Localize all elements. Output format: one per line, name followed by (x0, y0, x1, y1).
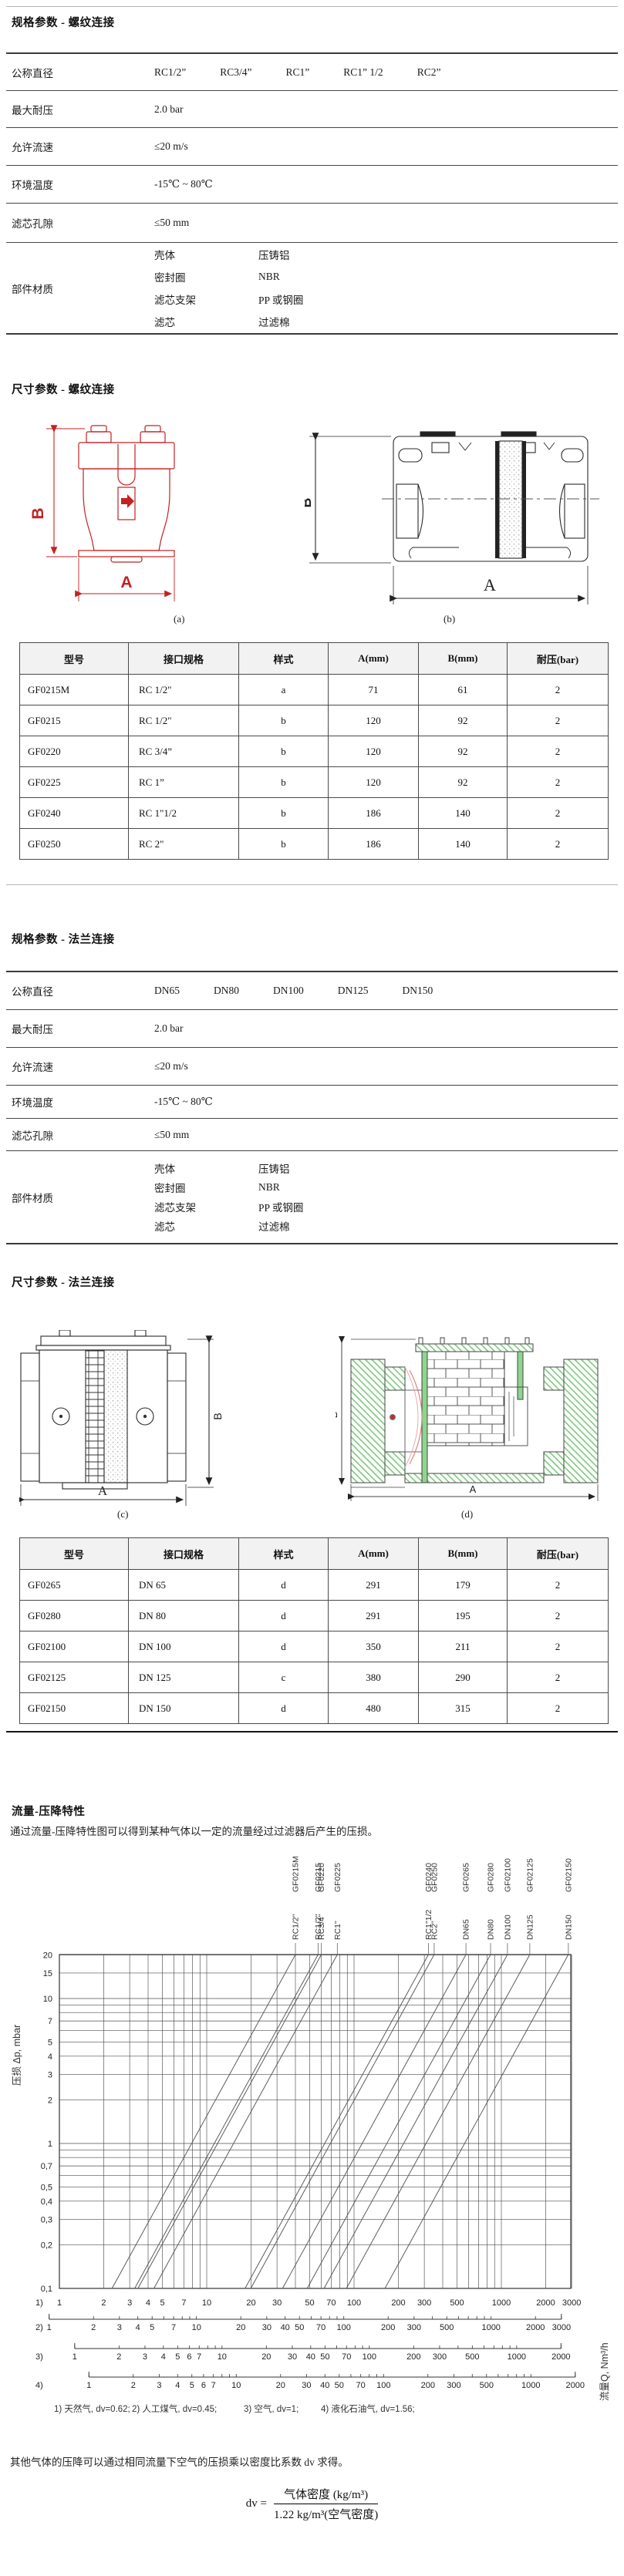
svg-text:1: 1 (47, 2323, 52, 2332)
svg-text:4: 4 (146, 2298, 150, 2308)
flow-pressure-chart: GF0215MRC1/2"GF0215RC1/2"GF0220RC3/4"GF0… (0, 1843, 624, 2430)
spec-row-diameter: 公称直径 DN65DN80DN100DN125DN150 (6, 972, 618, 1009)
svg-text:70: 70 (342, 2352, 351, 2362)
table-row: GF0240RC 1"1/2b1861402 (20, 798, 609, 829)
spec-value: 2.0 bar (154, 1022, 618, 1035)
spec-row-pore: 滤芯孔隙 ≤50 mm (6, 203, 618, 242)
svg-text:3000: 3000 (552, 2323, 571, 2332)
svg-text:200: 200 (406, 2352, 420, 2362)
svg-text:7: 7 (211, 2381, 216, 2390)
svg-text:1000: 1000 (521, 2381, 540, 2390)
material-name: NBR (258, 271, 280, 283)
table-cell: 380 (329, 1662, 419, 1693)
svg-text:6: 6 (187, 2352, 191, 2362)
table-cell: 2 (508, 798, 609, 829)
column-header: 样式 (239, 643, 329, 675)
svg-text:100: 100 (376, 2381, 390, 2390)
curve-model-label: GF0280 (487, 1863, 496, 1892)
svg-text:30: 30 (262, 2323, 272, 2332)
top-rule (6, 6, 618, 7)
svg-text:30: 30 (302, 2381, 311, 2390)
svg-text:100: 100 (347, 2298, 361, 2308)
svg-text:50: 50 (320, 2352, 329, 2362)
svg-text:3: 3 (117, 2323, 122, 2332)
curve-model-label: GF02150 (564, 1858, 573, 1892)
svg-text:3: 3 (157, 2381, 161, 2390)
svg-text:0,7: 0,7 (41, 2162, 52, 2171)
curve-model-label: GF0225 (333, 1863, 342, 1892)
svg-text:20: 20 (236, 2323, 245, 2332)
svg-text:3: 3 (48, 2070, 52, 2079)
svg-text:3000: 3000 (562, 2298, 581, 2308)
svg-text:0,2: 0,2 (41, 2241, 52, 2250)
table-row: GF0215MRC 1/2"a71612 (20, 675, 609, 705)
table-cell: 211 (419, 1631, 508, 1662)
svg-text:6: 6 (201, 2381, 206, 2390)
spec-row-pore: 滤芯孔隙 ≤50 mm (6, 1118, 618, 1150)
curve-size-label: RC2" (430, 1921, 439, 1940)
value-item: RC1” (286, 66, 310, 79)
svg-text:300: 300 (447, 2381, 460, 2390)
svg-text:3: 3 (143, 2352, 147, 2362)
table-cell: GF0215 (20, 705, 129, 736)
table-cell: b (239, 767, 329, 798)
curve-model-label: GF02100 (503, 1858, 512, 1892)
svg-text:10: 10 (202, 2298, 211, 2308)
column-header: 耐压(bar) (508, 1538, 609, 1570)
spec-value: ≤50 mm (154, 1129, 618, 1141)
column-header: B(mm) (419, 643, 508, 675)
svg-text:4: 4 (48, 2052, 52, 2062)
svg-text:3: 3 (127, 2298, 132, 2308)
curve-size-label: RC1" (333, 1921, 342, 1940)
table-row: GF02125DN 125c3802902 (20, 1662, 609, 1693)
dim-letter-B: B (336, 1412, 339, 1419)
value-item: DN80 (214, 985, 239, 997)
svg-text:2000: 2000 (536, 2298, 555, 2308)
chart-curves (112, 1955, 568, 2288)
svg-text:10: 10 (43, 1995, 52, 2004)
value-item: DN150 (403, 985, 433, 997)
flow-intro-text: 通过流量-压降特性图可以得到某种气体以一定的流量经过过滤器后产生的压损。 (10, 1823, 612, 1838)
material-line: 密封圈 NBR (154, 1178, 618, 1197)
svg-text:5: 5 (48, 2039, 52, 2048)
spec-table-threaded: 公称直径 RC1/2”RC3/4”RC1”RC1” 1/2RC2” 最大耐压 2… (6, 52, 618, 335)
curve-size-label: DN150 (564, 1914, 573, 1940)
table-cell: 290 (419, 1662, 508, 1693)
formula-fraction: 气体密度 (kg/m³) 1.22 kg/m³(空气密度) (274, 2486, 378, 2522)
table-cell: 2 (508, 1631, 609, 1662)
table-cell: DN 100 (129, 1631, 239, 1662)
diagram-threaded-style-a: B A (31, 423, 255, 615)
plot-border (59, 1955, 571, 2288)
curve-model-label: GF0250 (430, 1863, 439, 1892)
svg-text:0,5: 0,5 (41, 2184, 52, 2193)
table-cell: d (239, 1693, 329, 1724)
svg-text:1000: 1000 (508, 2352, 526, 2362)
table-row: GF0215RC 1/2"b120922 (20, 705, 609, 736)
material-name: NBR (258, 1181, 280, 1194)
spec-label: 最大耐压 (6, 1021, 154, 1036)
curve-size-label: RC3/4" (317, 1914, 326, 1940)
spec-label: 部件材质 (6, 1151, 154, 1243)
curve-GF0215M (112, 1955, 295, 2288)
svg-text:15: 15 (43, 1969, 52, 1978)
column-header: A(mm) (329, 643, 419, 675)
table-cell: GF0240 (20, 798, 129, 829)
formula-denominator: 1.22 kg/m³(空气密度) (274, 2504, 378, 2522)
svg-text:4: 4 (136, 2323, 140, 2332)
svg-text:70: 70 (316, 2323, 325, 2332)
curve-GF0220 (138, 1955, 322, 2288)
gas-footnote: 4) 液化石油气, dv=1.56; (321, 2403, 415, 2414)
table-cell: b (239, 798, 329, 829)
svg-text:7: 7 (48, 2017, 52, 2026)
column-header: 样式 (239, 1538, 329, 1570)
table-cell: DN 65 (129, 1570, 239, 1601)
material-part: 滤芯支架 (154, 1199, 258, 1214)
svg-text:20: 20 (246, 2298, 255, 2308)
materials-list: 壳体 压铸铝 密封圈 NBR 滤芯支架 PP 或钢圈 滤芯 过滤棉 (154, 243, 618, 333)
section-separator-rule (6, 1731, 618, 1732)
svg-text:1: 1 (86, 2381, 91, 2390)
chart-curve-labels: GF0215MRC1/2"GF0215RC1/2"GF0220RC3/4"GF0… (291, 1856, 573, 1955)
table-row: GF0250RC 2"b1861402 (20, 829, 609, 860)
table-cell: RC 1/2" (129, 675, 239, 705)
page-separator-rule (6, 884, 618, 885)
table-row: GF0265DN 65d2911792 (20, 1570, 609, 1601)
value-item: RC3/4” (220, 66, 251, 79)
diagram-flanged-style-d: B A (336, 1322, 605, 1509)
table-cell: 61 (419, 675, 508, 705)
svg-text:30: 30 (272, 2298, 282, 2308)
dim-letter-A: A (484, 575, 496, 594)
table-cell: 291 (329, 1570, 419, 1601)
svg-text:40: 40 (320, 2381, 329, 2390)
material-name: 压铸铝 (258, 1160, 290, 1176)
figure-caption-a: (a) (174, 613, 184, 625)
column-header: 接口规格 (129, 1538, 239, 1570)
table-cell: GF02100 (20, 1631, 129, 1662)
table-cell: 2 (508, 1570, 609, 1601)
spec-row-materials: 部件材质 壳体 压铸铝 密封圈 NBR 滤芯支架 PP 或钢圈 滤芯 过滤棉 (6, 1150, 618, 1243)
svg-text:5: 5 (150, 2323, 154, 2332)
svg-text:5: 5 (160, 2298, 164, 2308)
svg-text:2: 2 (101, 2298, 106, 2308)
table-cell: DN 150 (129, 1693, 239, 1724)
section-heading-spec-flanged: 规格参数 - 法兰连接 (12, 931, 115, 947)
table-cell: 120 (329, 767, 419, 798)
table-cell: 92 (419, 736, 508, 767)
svg-text:500: 500 (440, 2323, 454, 2332)
curve-GF0280 (307, 1955, 491, 2288)
svg-text:7: 7 (171, 2323, 176, 2332)
materials-list: 壳体 压铸铝 密封圈 NBR 滤芯支架 PP 或钢圈 滤芯 过滤棉 (154, 1151, 618, 1243)
table-cell: b (239, 829, 329, 860)
dim-letter-A: A (120, 574, 132, 591)
svg-text:300: 300 (433, 2352, 447, 2362)
table-cell: c (239, 1662, 329, 1693)
dim-letter-A: A (98, 1483, 108, 1498)
material-part: 滤芯 (154, 1218, 258, 1234)
table-cell: 2 (508, 1693, 609, 1724)
svg-text:10: 10 (231, 2381, 241, 2390)
table-cell: a (239, 675, 329, 705)
table-cell: 2 (508, 705, 609, 736)
svg-text:50: 50 (295, 2323, 304, 2332)
curve-model-label: GF0215M (291, 1856, 300, 1892)
column-header: 耐压(bar) (508, 643, 609, 675)
curve-size-label: DN125 (525, 1914, 535, 1940)
table-cell: DN 125 (129, 1662, 239, 1693)
table-cell: 179 (419, 1570, 508, 1601)
spec-row-temperature: 环境温度 -15℃ ~ 80℃ (6, 165, 618, 203)
dim-letter-B: B (305, 498, 314, 508)
svg-text:200: 200 (381, 2323, 395, 2332)
material-line: 密封圈 NBR (154, 266, 618, 288)
svg-text:1: 1 (73, 2352, 77, 2362)
table-cell: d (239, 1631, 329, 1662)
y-axis-labels: 2015107543210,70,50,40,30,20,1压损 Δp, mba… (12, 1951, 52, 2294)
material-name: 压铸铝 (258, 247, 290, 262)
spec-value: -15℃ ~ 80℃ (154, 1096, 618, 1108)
material-part: 滤芯支架 (154, 291, 258, 307)
svg-text:10: 10 (218, 2352, 227, 2362)
curve-GF02150 (385, 1955, 568, 2288)
table-cell: 120 (329, 705, 419, 736)
material-line: 滤芯 过滤棉 (154, 1217, 618, 1236)
material-line: 壳体 压铸铝 (154, 1159, 618, 1178)
section-heading-flow: 流量-压降特性 (12, 1803, 85, 1819)
spec-row-velocity: 允许流速 ≤20 m/s (6, 1047, 618, 1085)
svg-text:1: 1 (57, 2298, 62, 2308)
spec-label: 环境温度 (6, 1094, 154, 1110)
svg-text:2: 2 (116, 2352, 121, 2362)
figure-caption-b: (b) (444, 613, 455, 625)
material-part: 密封圈 (154, 1180, 258, 1195)
material-name: 过滤棉 (258, 1218, 290, 1234)
table-header-row: 型号接口规格样式A(mm)B(mm)耐压(bar) (20, 1538, 609, 1570)
curve-model-label: GF02125 (525, 1858, 535, 1892)
material-line: 滤芯支架 PP 或钢圈 (154, 1197, 618, 1217)
table-cell: 140 (419, 829, 508, 860)
dimension-table-flanged: 型号接口规格样式A(mm)B(mm)耐压(bar)GF0265DN 65d291… (19, 1537, 609, 1724)
material-part: 壳体 (154, 247, 258, 262)
curve-size-label: DN100 (503, 1914, 512, 1940)
y-axis-title: 压损 Δp, mbar (12, 2025, 22, 2086)
table-cell: 2 (508, 736, 609, 767)
column-header: 型号 (20, 1538, 129, 1570)
svg-text:300: 300 (407, 2323, 421, 2332)
curve-size-label: DN80 (487, 1919, 496, 1940)
section-heading-dim-flanged: 尺寸参数 - 法兰连接 (12, 1274, 115, 1290)
spec-diameter-values: RC1/2”RC3/4”RC1”RC1” 1/2RC2” (154, 66, 618, 79)
svg-text:20: 20 (43, 1951, 52, 1960)
svg-text:500: 500 (450, 2298, 464, 2308)
svg-text:1: 1 (48, 2140, 52, 2149)
table-cell: GF0280 (20, 1601, 129, 1631)
x-axis-scales: 1)12345710203050701002003005001000200030… (35, 2298, 610, 2401)
scale-id: 2) (35, 2323, 43, 2332)
table-cell: 480 (329, 1693, 419, 1724)
material-name: PP 或钢圈 (258, 1199, 303, 1214)
svg-text:2: 2 (131, 2381, 136, 2390)
material-line: 壳体 压铸铝 (154, 244, 618, 266)
svg-text:2: 2 (91, 2323, 96, 2332)
curve-model-label: GF0265 (462, 1863, 471, 1892)
spec-label: 允许流速 (6, 139, 154, 154)
spec-label: 环境温度 (6, 177, 154, 192)
dv-formula: dv = 气体密度 (kg/m³) 1.22 kg/m³(空气密度) (0, 2486, 624, 2522)
svg-text:50: 50 (305, 2298, 314, 2308)
svg-text:7: 7 (181, 2298, 186, 2308)
table-cell: RC 1/2" (129, 705, 239, 736)
value-item: RC2” (417, 66, 441, 79)
svg-text:40: 40 (281, 2323, 290, 2332)
spec-value: ≤50 mm (154, 217, 618, 229)
column-header: B(mm) (419, 1538, 508, 1570)
svg-text:500: 500 (465, 2352, 479, 2362)
svg-text:1000: 1000 (481, 2323, 500, 2332)
table-row: GF02100DN 100d3502112 (20, 1631, 609, 1662)
section-heading-spec-threaded: 规格参数 - 螺纹连接 (12, 14, 115, 30)
svg-text:2: 2 (48, 2096, 52, 2105)
table-cell: 186 (329, 798, 419, 829)
table-cell: 2 (508, 829, 609, 860)
svg-text:200: 200 (391, 2298, 405, 2308)
table-cell: 2 (508, 1601, 609, 1631)
table-cell: GF02125 (20, 1662, 129, 1693)
column-header: 接口规格 (129, 643, 239, 675)
value-item: DN100 (273, 985, 304, 997)
gas-footnote: 3) 空气, dv=1; (244, 2403, 299, 2414)
value-item: RC1” 1/2 (343, 66, 383, 79)
svg-text:2000: 2000 (566, 2381, 585, 2390)
table-cell: 315 (419, 1693, 508, 1724)
svg-text:20: 20 (276, 2381, 285, 2390)
table-cell: 71 (329, 675, 419, 705)
table-cell: 186 (329, 829, 419, 860)
svg-text:0,3: 0,3 (41, 2215, 52, 2224)
spec-row-diameter: 公称直径 RC1/2”RC3/4”RC1”RC1” 1/2RC2” (6, 54, 618, 90)
svg-text:70: 70 (356, 2381, 366, 2390)
spec-row-materials: 部件材质 壳体 压铸铝 密封圈 NBR 滤芯支架 PP 或钢圈 滤芯 过滤棉 (6, 242, 618, 333)
svg-text:2000: 2000 (526, 2323, 545, 2332)
table-cell: 92 (419, 767, 508, 798)
svg-text:10: 10 (192, 2323, 201, 2332)
curve-GF02100 (324, 1955, 508, 2288)
spec-diameter-values: DN65DN80DN100DN125DN150 (154, 985, 618, 997)
figure-caption-d: (d) (461, 1508, 473, 1520)
value-item: RC1/2” (154, 66, 186, 79)
material-part: 壳体 (154, 1160, 258, 1176)
table-cell: b (239, 705, 329, 736)
table-cell: GF0215M (20, 675, 129, 705)
svg-text:0,4: 0,4 (41, 2197, 52, 2207)
svg-text:1000: 1000 (492, 2298, 511, 2308)
table-cell: 120 (329, 736, 419, 767)
table-row: GF0280DN 80d2911952 (20, 1601, 609, 1631)
spec-table-flanged: 公称直径 DN65DN80DN100DN125DN150 最大耐压 2.0 ba… (6, 971, 618, 1244)
gas-footnotes: 1) 天然气, dv=0.62;2) 人工煤气, dv=0.45;3) 空气, … (54, 2403, 415, 2414)
datasheet-page: 规格参数 - 螺纹连接 公称直径 RC1/2”RC3/4”RC1”RC1” 1/… (0, 0, 624, 2576)
table-cell: GF0225 (20, 767, 129, 798)
table-cell: GF02150 (20, 1693, 129, 1724)
material-part: 滤芯 (154, 314, 258, 329)
table-cell: 92 (419, 705, 508, 736)
dimension-table-threaded: 型号接口规格样式A(mm)B(mm)耐压(bar)GF0215MRC 1/2"a… (19, 642, 609, 860)
svg-text:5: 5 (175, 2352, 180, 2362)
material-part: 密封圈 (154, 269, 258, 285)
table-cell: GF0250 (20, 829, 129, 860)
curve-model-label: GF0220 (317, 1863, 326, 1892)
svg-text:0,1: 0,1 (41, 2285, 52, 2294)
figure-caption-c: (c) (117, 1508, 128, 1520)
table-cell: RC 1"1/2 (129, 798, 239, 829)
table-cell: 291 (329, 1601, 419, 1631)
svg-text:70: 70 (326, 2298, 336, 2308)
dim-letter-A: A (470, 1483, 477, 1495)
diagram-threaded-style-b: B A (305, 423, 605, 615)
table-row: GF0220RC 3/4”b120922 (20, 736, 609, 767)
table-header-row: 型号接口规格样式A(mm)B(mm)耐压(bar) (20, 643, 609, 675)
scale-id: 3) (35, 2352, 43, 2362)
table-cell: DN 80 (129, 1601, 239, 1631)
material-name: PP 或钢圈 (258, 291, 303, 307)
svg-text:500: 500 (480, 2381, 494, 2390)
table-cell: GF0265 (20, 1570, 129, 1601)
svg-text:2000: 2000 (551, 2352, 570, 2362)
table-cell: GF0220 (20, 736, 129, 767)
spec-value: ≤20 m/s (154, 1060, 618, 1072)
table-cell: 2 (508, 1662, 609, 1693)
material-line: 滤芯 过滤棉 (154, 311, 618, 333)
formula-numerator: 气体密度 (kg/m³) (274, 2486, 378, 2504)
table-cell: 195 (419, 1601, 508, 1631)
svg-text:300: 300 (417, 2298, 431, 2308)
spec-label: 滤芯孔隙 (6, 1127, 154, 1143)
spec-label: 最大耐压 (6, 102, 154, 117)
table-cell: 350 (329, 1631, 419, 1662)
table-row: GF02150DN 150d4803152 (20, 1693, 609, 1724)
svg-text:4: 4 (161, 2352, 166, 2362)
svg-text:50: 50 (335, 2381, 344, 2390)
table-cell: d (239, 1570, 329, 1601)
svg-text:40: 40 (306, 2352, 315, 2362)
table-cell: 2 (508, 675, 609, 705)
spec-label: 公称直径 (6, 65, 154, 80)
spec-label: 允许流速 (6, 1059, 154, 1074)
table-cell: RC 1” (129, 767, 239, 798)
material-line: 滤芯支架 PP 或钢圈 (154, 288, 618, 311)
gas-footnote: 2) 人工煤气, dv=0.45; (132, 2403, 217, 2414)
svg-text:20: 20 (261, 2352, 271, 2362)
table-cell: RC 2" (129, 829, 239, 860)
value-item: DN65 (154, 985, 180, 997)
svg-text:100: 100 (337, 2323, 351, 2332)
svg-text:100: 100 (363, 2352, 376, 2362)
spec-label: 公称直径 (6, 983, 154, 998)
gas-footnote: 1) 天然气, dv=0.62; (54, 2403, 130, 2414)
scale-id: 4) (35, 2381, 43, 2390)
scale-id: 1) (35, 2298, 43, 2308)
spec-label: 滤芯孔隙 (6, 215, 154, 231)
flow-note-text: 其他气体的压降可以通过相同流量下空气的压损乘以密度比系数 dv 求得。 (10, 2453, 612, 2469)
curve-size-label: DN65 (462, 1919, 471, 1940)
chart-grid (59, 1955, 572, 2288)
svg-text:7: 7 (197, 2352, 201, 2362)
x-axis-title: 流量Q, Nm³/h (599, 2342, 610, 2401)
